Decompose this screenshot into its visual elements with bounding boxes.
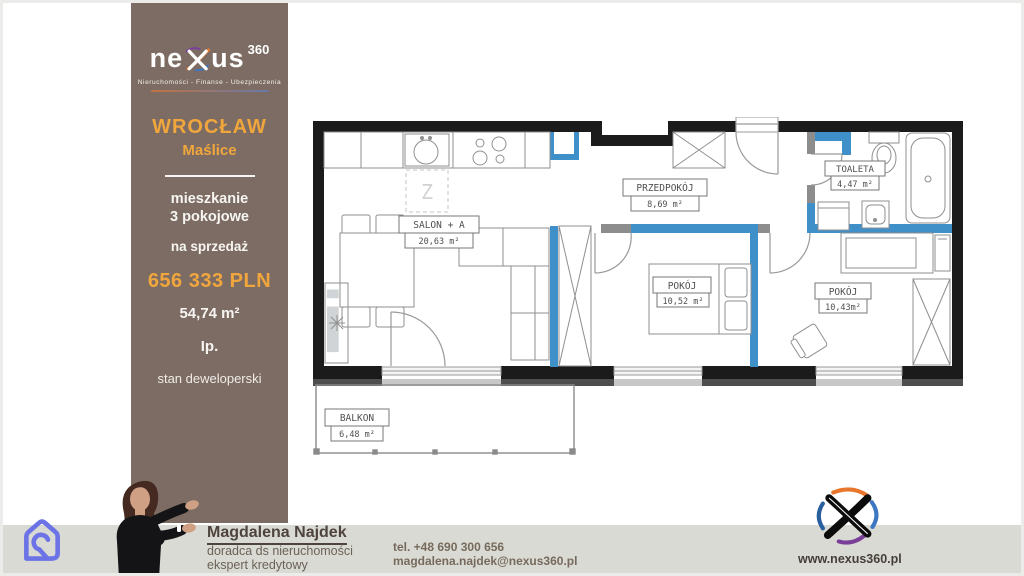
svg-text:4,47 m²: 4,47 m² — [837, 180, 873, 190]
svg-text:20,63 m²: 20,63 m² — [419, 237, 460, 247]
agent-email: magdalena.najdek@nexus360.pl — [393, 554, 577, 568]
brand-word-left: ne — [150, 43, 184, 74]
room-label-balcony: BALKON 6,48 m² — [325, 409, 389, 441]
svg-text:10,52 m²: 10,52 m² — [663, 297, 704, 307]
svg-text:10,43m²: 10,43m² — [825, 303, 861, 313]
agent-roles: doradca ds nieruchomości ekspert kredyto… — [207, 544, 353, 572]
property-type-line1: mieszkanie — [131, 191, 288, 207]
svg-text:BALKON: BALKON — [340, 413, 375, 424]
house-logo-icon — [19, 513, 65, 571]
listing-floor: Ip. — [131, 338, 288, 355]
x-logo-icon — [809, 487, 885, 549]
dishwasher-zone: Z — [406, 170, 448, 212]
svg-text:SALON + A: SALON + A — [413, 220, 465, 231]
agent-contact: tel. +48 690 300 656 magdalena.najdek@ne… — [393, 540, 577, 568]
hall-shaft — [673, 132, 725, 168]
svg-text:PRZEDPOKÓJ: PRZEDPOKÓJ — [636, 182, 693, 194]
corner-window-glass — [554, 132, 574, 154]
brand-word-right: us — [211, 43, 245, 74]
listing-condition: stan deweloperski — [131, 371, 288, 386]
offer-type: na sprzedaż — [131, 239, 288, 254]
sidebar-divider — [165, 175, 255, 177]
svg-text:POKÓJ: POKÓJ — [829, 286, 858, 298]
svg-text:POKÓJ: POKÓJ — [668, 280, 697, 292]
bedroom1-furniture — [559, 226, 751, 366]
listing-price: 656 333 PLN — [131, 270, 288, 293]
agent-photo — [99, 477, 211, 576]
property-type-line2: 3 pokojowe — [131, 209, 288, 225]
room-label-toilet: TOALETA 4,47 m² — [825, 161, 885, 190]
room-label-room2: POKÓJ 10,43m² — [815, 283, 871, 313]
listing-poster: ne us 360 Nieruchomości - Finanse - Ubez… — [0, 0, 1024, 576]
info-sidebar: ne us 360 Nieruchomości - Finanse - Ubez… — [131, 3, 288, 523]
svg-text:Z: Z — [421, 180, 433, 204]
windows — [382, 367, 902, 375]
listing-city: WROCŁAW — [131, 116, 288, 139]
brand-360: 360 — [248, 42, 270, 57]
agent-role-1: doradca ds nieruchomości — [207, 544, 353, 558]
brand-underline — [151, 90, 269, 92]
room-label-salon: SALON + A 20,63 m² — [399, 216, 479, 248]
brand-tagline: Nieruchomości - Finanse - Ubezpieczenia — [131, 79, 288, 86]
listing-district: Maślice — [131, 142, 288, 159]
listing-area: 54,74 m² — [131, 305, 288, 322]
svg-text:8,69 m²: 8,69 m² — [647, 200, 683, 210]
brand-logo: ne us 360 Nieruchomości - Finanse - Ubez… — [131, 43, 288, 92]
agent-role-2: ekspert kredytowy — [207, 558, 353, 572]
svg-text:TOALETA: TOALETA — [836, 165, 875, 175]
agent-phone: tel. +48 690 300 656 — [393, 540, 577, 554]
brand-x-icon — [184, 46, 210, 72]
agent-name: Magdalena Najdek — [207, 524, 347, 545]
room-label-hall: PRZEDPOKÓJ 8,69 m² — [623, 179, 707, 211]
kitchen-counter — [324, 132, 550, 168]
website-url: www.nexus360.pl — [798, 552, 902, 566]
room-label-room1: POKÓJ 10,52 m² — [653, 277, 711, 307]
svg-text:6,48 m²: 6,48 m² — [339, 430, 375, 440]
floor-plan: li — [313, 117, 968, 462]
